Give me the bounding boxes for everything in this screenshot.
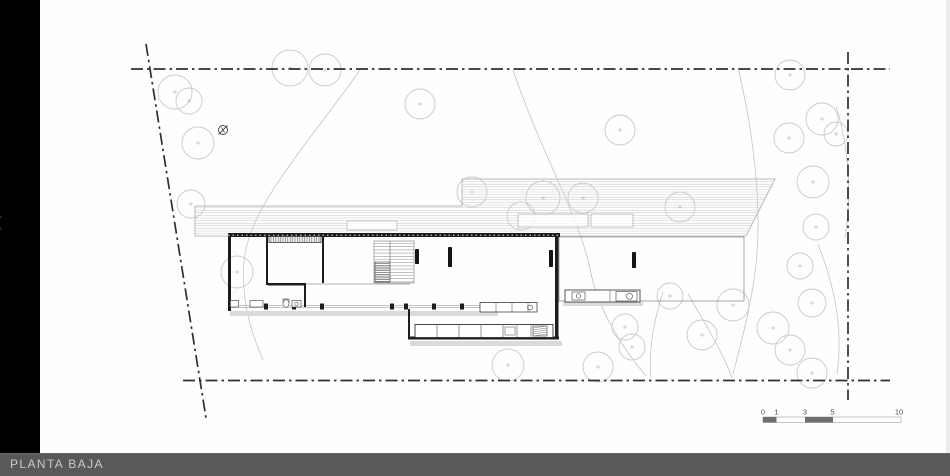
image-viewer: 013510 ‹ PLANTA BAJA: [0, 0, 950, 476]
tree-center-mark: [418, 102, 422, 106]
tree-center-mark: [798, 264, 802, 268]
wall-shadow: [230, 311, 498, 316]
contour-line: [733, 68, 758, 374]
canvas-right-edge: [946, 0, 950, 453]
contour-line: [836, 106, 849, 238]
tree-center-mark: [788, 73, 792, 77]
tree-center-mark: [623, 325, 627, 329]
tree-center-mark: [189, 202, 193, 206]
column: [549, 250, 553, 267]
tree-center-mark: [771, 326, 775, 330]
glazing-post: [460, 304, 464, 310]
tree-center-mark: [810, 371, 814, 375]
glazing-post: [264, 304, 268, 310]
bath-fixture: [250, 301, 263, 308]
tree-center-mark: [834, 132, 838, 136]
viewer-left-panel: ‹: [0, 0, 40, 453]
wall: [555, 237, 559, 338]
wall: [322, 233, 324, 283]
tree-center-mark: [820, 117, 824, 121]
wall: [408, 309, 410, 338]
contour-line: [818, 244, 839, 374]
glazing-post: [390, 304, 394, 310]
tree-center-mark: [678, 205, 682, 209]
kitchen-island: [415, 325, 553, 338]
scale-bar-segment: [763, 417, 777, 423]
wall-shadow: [410, 341, 562, 346]
tree-center-mark: [323, 68, 327, 72]
contour-line: [688, 294, 732, 378]
tree-center-mark: [700, 333, 704, 337]
glazing-post: [404, 304, 408, 310]
tree-center-mark: [731, 303, 735, 307]
tree-center-mark: [788, 348, 792, 352]
tree-center-mark: [810, 301, 814, 305]
tree-center-mark: [811, 180, 815, 184]
previous-image-chevron-icon[interactable]: ‹: [0, 206, 16, 240]
tree-center-mark: [173, 90, 177, 94]
bath-fixture: [231, 301, 239, 308]
glazing-post: [320, 304, 324, 310]
wall: [304, 285, 306, 307]
floor-plan-drawing: 013510: [0, 0, 950, 476]
scale-label: 3: [803, 408, 807, 417]
column: [415, 249, 419, 264]
roof-skylight: [347, 221, 397, 230]
toilet: [283, 300, 289, 308]
tree-center-mark: [814, 225, 818, 229]
scale-label: 1: [774, 408, 778, 417]
tree-center-mark: [541, 196, 545, 200]
tree-center-mark: [630, 345, 634, 349]
wall: [266, 237, 268, 285]
column: [448, 247, 452, 267]
survey-marker-tick: [222, 128, 225, 133]
roof-skylight: [591, 214, 633, 227]
scale-label: 5: [830, 408, 834, 417]
tree-center-mark: [235, 270, 239, 274]
contour-line: [243, 70, 360, 360]
tree-center-mark: [596, 365, 600, 369]
tree-center-mark: [506, 363, 510, 367]
tree-center-mark: [787, 136, 791, 140]
scale-label: 0: [761, 408, 765, 417]
tree-center-mark: [196, 141, 200, 145]
roof-skylight: [518, 214, 588, 227]
wall: [268, 283, 306, 286]
wall: [228, 233, 231, 311]
scale-bar-segment: [805, 417, 833, 423]
tree-center-mark: [618, 128, 622, 132]
wall-shadow: [563, 302, 643, 306]
tree-center-mark: [581, 196, 585, 200]
column: [632, 252, 636, 268]
scale-label: 10: [895, 408, 903, 417]
glazing-post: [432, 304, 436, 310]
footer-bar: PLANTA BAJA: [0, 453, 950, 476]
tree-center-mark: [668, 294, 672, 298]
kitchen-counter: [480, 303, 537, 313]
plan-title: PLANTA BAJA: [0, 454, 104, 475]
